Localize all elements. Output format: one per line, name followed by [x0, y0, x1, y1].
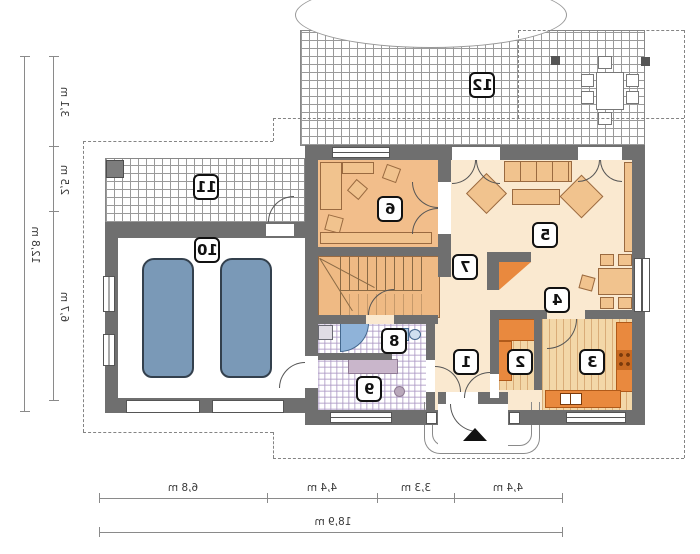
dining-chair	[600, 254, 614, 266]
room-label-7: 7	[452, 254, 478, 280]
dim-label-left-3: 6,7 m	[58, 290, 70, 324]
room-number: 6	[385, 200, 395, 218]
dim-label-bottom-3: 3,3 m	[399, 482, 433, 494]
wall-pantry-kitchen	[534, 319, 542, 390]
dim-tick	[99, 527, 100, 537]
utility-window	[330, 412, 392, 423]
garage-wall-left	[105, 222, 118, 413]
dim-label-bottom-4: 4,4 m	[491, 482, 525, 494]
entrance-arrow	[463, 428, 487, 441]
room-label-3: 3	[579, 349, 605, 375]
room-label-8: 8	[381, 328, 407, 354]
fireplace-wall	[487, 252, 531, 262]
terrace-door-opening-a	[452, 147, 500, 160]
terrace-door-opening-b	[578, 147, 622, 160]
fireplace-hearth	[499, 262, 531, 290]
wall-stair-stub	[438, 247, 451, 277]
roof-outline	[273, 458, 684, 459]
garage-door	[212, 400, 284, 413]
dim-line-left-segments	[53, 57, 54, 401]
dim-tick	[377, 493, 378, 503]
roof-outline	[684, 30, 685, 458]
dim-tick	[49, 146, 59, 147]
room-number: 10	[197, 241, 218, 259]
roof-outline	[518, 30, 519, 118]
sink	[560, 393, 582, 405]
room-label-4: 4	[544, 287, 570, 313]
car	[142, 258, 194, 378]
room-label-5: 5	[532, 222, 558, 248]
terrace-chair	[626, 91, 639, 104]
dim-tick	[562, 527, 563, 537]
room-label-6: 6	[377, 196, 403, 222]
car	[220, 258, 272, 378]
washer	[318, 325, 333, 340]
roof-outline	[83, 141, 273, 142]
bath-door-opening	[366, 315, 394, 324]
terrace11-door-opening	[266, 224, 294, 236]
dim-label-bottom-1: 6,8 m	[166, 482, 200, 494]
stair-divider	[340, 256, 341, 318]
room-number: 5	[540, 226, 550, 244]
dim-tick	[99, 493, 100, 503]
dining-chair	[618, 254, 632, 266]
dim-label-bottom-total: 18,9 m	[313, 516, 353, 528]
room-number: 12	[472, 76, 493, 94]
room-label-11: 11	[193, 174, 219, 200]
garage-door	[126, 400, 200, 413]
pantry-counter-top	[498, 319, 538, 341]
roof-outline	[273, 432, 274, 458]
room6-window	[332, 147, 390, 158]
stair-treads	[340, 257, 422, 290]
room-number: 2	[515, 353, 525, 371]
room-label-10: 10	[194, 237, 220, 263]
room-number: 8	[389, 332, 399, 350]
room-number: 7	[460, 258, 470, 276]
room-label-12: 12	[469, 72, 495, 98]
room-number: 4	[552, 291, 562, 309]
room-label-1: 1	[453, 349, 479, 375]
dim-tick	[267, 493, 268, 503]
floor-plan: 1 2 3 4 5 6 7 8 9 10 11 12 3,1 m 2,5 m 6…	[0, 0, 700, 554]
dim-label-left-total: 12,8 m	[29, 225, 41, 265]
terrace-chair	[581, 74, 594, 87]
dim-label-bottom-2: 4,4 m	[305, 482, 339, 494]
room-number: 11	[196, 178, 217, 196]
utility-counter	[348, 359, 398, 374]
floor-drain	[394, 386, 405, 397]
dining-chair	[618, 297, 632, 309]
dim-tick	[49, 56, 59, 57]
hall-utility-door-opening	[426, 360, 435, 392]
kitchen-island	[545, 390, 621, 408]
roof-outline	[83, 141, 84, 432]
room6-door-opening	[438, 182, 451, 234]
dim-label-left-2: 2,5 m	[58, 163, 70, 197]
dim-line-bottom-segments	[99, 498, 562, 499]
sofa	[504, 161, 572, 182]
terrace-11-post	[106, 160, 124, 178]
roof-outline	[83, 432, 273, 433]
porch-pillar	[426, 412, 437, 424]
room-label-9: 9	[356, 376, 382, 402]
dim-tick	[20, 56, 30, 57]
coffee-table	[512, 189, 560, 205]
dim-label-left-1: 3,1 m	[58, 85, 70, 119]
desk-horizontal	[342, 162, 374, 174]
sink-divider	[570, 393, 571, 405]
dim-tick	[49, 211, 59, 212]
wall-room6-bottom	[318, 247, 438, 256]
dim-tick	[49, 400, 59, 401]
wall-bath-divider	[312, 353, 392, 360]
toilet-bowl	[409, 329, 421, 340]
roof-outline	[273, 118, 684, 119]
desk-vertical	[320, 162, 342, 210]
room-number: 3	[587, 353, 597, 371]
dim-tick	[562, 493, 563, 503]
roof-outline	[518, 30, 684, 31]
terrace-chair	[626, 74, 639, 87]
terrace-table	[596, 72, 624, 110]
garage-window	[103, 334, 115, 366]
dim-line-left-total	[24, 57, 25, 412]
porch-pillar	[509, 412, 520, 424]
hall-pantry-door-opening	[490, 374, 499, 398]
stove	[617, 350, 632, 370]
terrace-post	[551, 56, 560, 65]
dim-line-bottom-total	[99, 532, 562, 533]
dim-tick	[454, 493, 455, 503]
room-label-2: 2	[507, 349, 533, 375]
kitchen-window	[566, 412, 626, 423]
room-number: 1	[461, 353, 471, 371]
dining-window	[634, 258, 650, 312]
room-number: 9	[364, 380, 374, 398]
terrace-chair	[581, 91, 594, 104]
fireplace-wall	[487, 262, 499, 290]
roof-outline	[273, 118, 274, 141]
fireplace	[487, 252, 531, 290]
dining-chair	[600, 297, 614, 309]
garage-house-door-opening	[305, 356, 318, 388]
terrace-chair	[598, 56, 612, 69]
dim-tick	[20, 411, 30, 412]
terrace-post	[641, 57, 650, 66]
garage-window	[103, 276, 115, 312]
dining-table	[598, 268, 634, 295]
stair-rail	[340, 290, 422, 291]
